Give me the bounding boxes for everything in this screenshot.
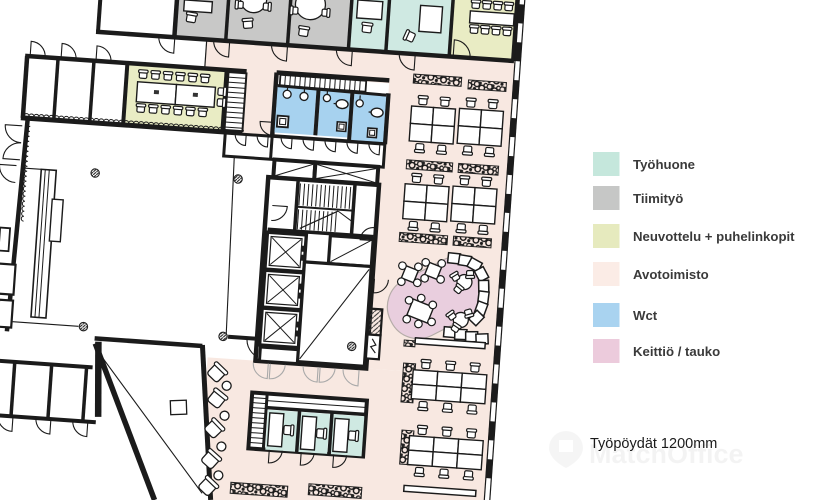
svg-text:Avotoimisto: Avotoimisto [633,267,709,282]
svg-text:Neuvottelu + puhelinkopit: Neuvottelu + puhelinkopit [633,229,795,244]
svg-text:Työpöydät 1200mm: Työpöydät 1200mm [590,436,717,452]
svg-text:Työhuone: Työhuone [633,157,695,172]
svg-text:Keittiö / tauko: Keittiö / tauko [633,344,720,359]
svg-text:Tiimityö: Tiimityö [633,191,683,206]
svg-text:Wct: Wct [633,308,658,323]
